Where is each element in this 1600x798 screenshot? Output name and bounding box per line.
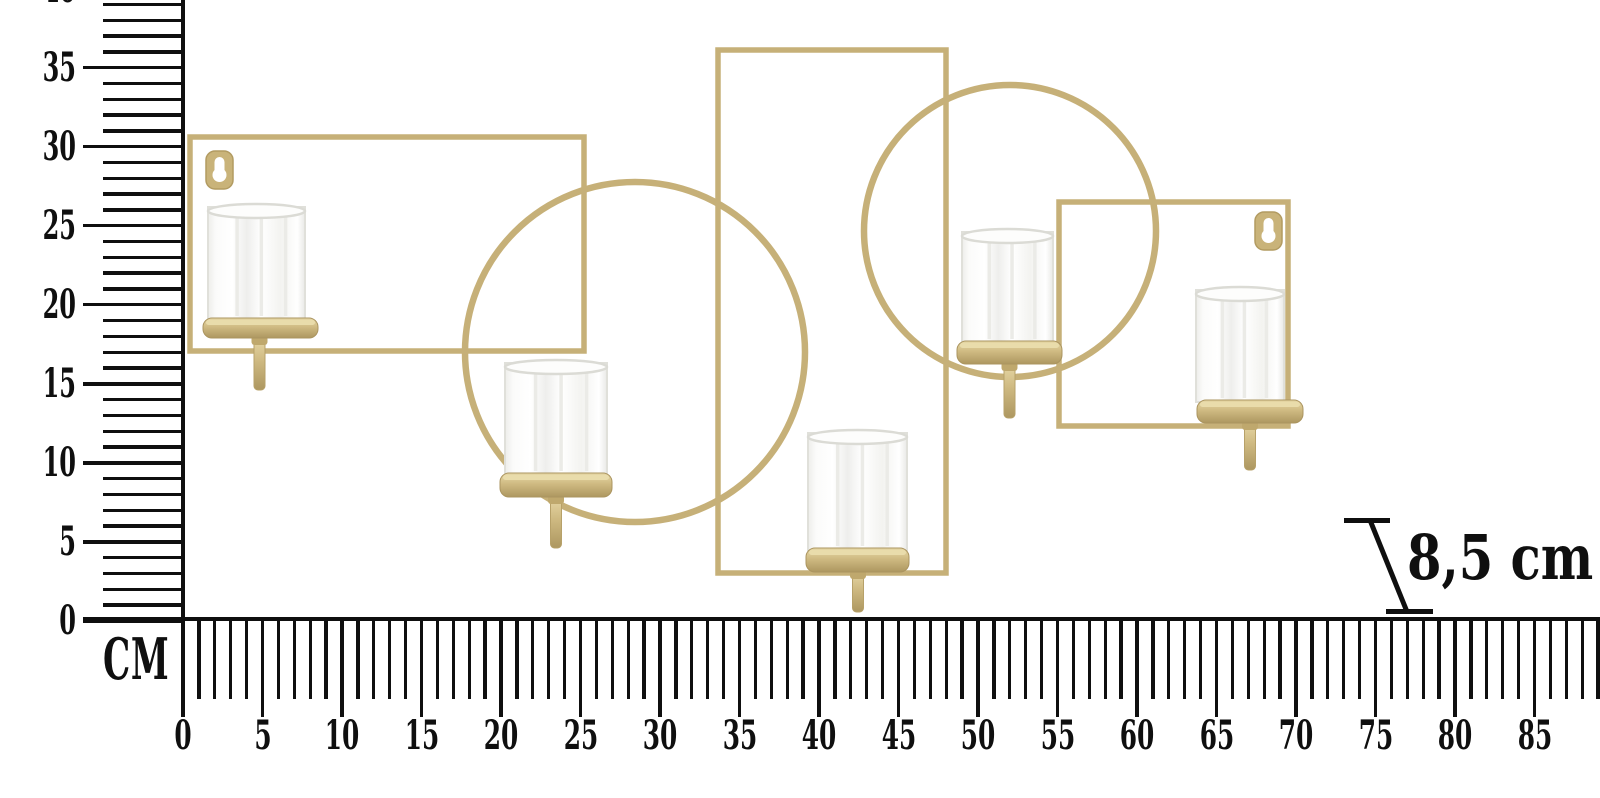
h-ruler-minor-tick [992,619,995,699]
glass-rim [808,430,907,444]
h-ruler-minor-tick [356,619,359,699]
h-ruler-minor-tick [706,619,709,699]
h-ruler-minor-tick [1517,619,1520,699]
h-ruler-minor-tick [690,619,693,699]
h-ruler-minor-tick [1501,619,1504,699]
h-ruler-minor-tick [1024,619,1027,699]
h-ruler-major-tick [499,619,502,717]
h-ruler-minor-tick [1437,619,1440,699]
h-ruler-label: 30 [635,714,685,758]
h-ruler-minor-tick [1040,619,1043,699]
h-ruler-minor-tick [611,619,614,699]
h-ruler-minor-tick [722,619,725,699]
h-ruler-minor-tick [849,619,852,699]
cup-base-highlight [1200,402,1300,407]
depth-bottom-bar [1386,609,1433,614]
h-ruler-minor-tick [1072,619,1075,699]
v-ruler-minor-tick [103,556,183,559]
h-ruler-minor-tick [1390,619,1393,699]
v-ruler-major-tick [83,461,183,464]
h-ruler-label: 35 [715,714,765,758]
h-ruler-label: 60 [1112,714,1162,758]
v-ruler-minor-tick [103,240,183,243]
h-ruler-label: 15 [397,714,447,758]
v-ruler-minor-tick [103,603,183,606]
v-ruler-label: 0 [38,599,76,643]
v-ruler-label: 25 [38,204,76,248]
v-ruler-label: 10 [38,441,76,485]
h-ruler-minor-tick [1596,619,1599,699]
v-ruler-label: 20 [38,283,76,327]
cup-base-highlight [206,320,315,325]
h-ruler-minor-tick [945,619,948,699]
v-ruler-label: 15 [38,362,76,406]
v-ruler-label: 40 [38,0,76,11]
h-ruler-major-tick [579,619,582,717]
h-ruler-minor-tick [801,619,804,699]
h-ruler-minor-tick [1278,619,1281,699]
h-ruler-minor-tick [1151,619,1154,699]
h-ruler-minor-tick [1183,619,1186,699]
h-ruler-minor-tick [309,619,312,699]
v-ruler-major-tick [83,382,183,385]
h-ruler-major-tick [897,619,900,717]
v-ruler-minor-tick [103,493,183,496]
measurement-diagram: 0510152025303540051015202530354045505560… [0,0,1600,798]
h-ruler-minor-tick [563,619,566,699]
glass-rim [505,360,607,374]
h-ruler-minor-tick [277,619,280,699]
v-ruler-minor-tick [103,98,183,101]
h-ruler-minor-tick [1565,619,1568,699]
v-ruler-minor-tick [103,430,183,433]
h-ruler-major-tick [1533,619,1536,717]
h-ruler-minor-tick [1342,619,1345,699]
v-ruler-major-tick [83,540,183,543]
v-ruler-major-tick [83,66,183,69]
glass-rim [1196,287,1284,301]
h-ruler-major-tick [1215,619,1218,717]
h-ruler-minor-tick [642,619,645,699]
h-ruler-minor-tick [1581,619,1584,699]
h-ruler-label: 70 [1271,714,1321,758]
h-ruler-major-tick [658,619,661,717]
h-ruler-minor-tick [913,619,916,699]
v-ruler-minor-tick [103,509,183,512]
h-ruler-minor-tick [770,619,773,699]
h-ruler-major-tick [1453,619,1456,717]
cup-base-highlight [809,550,906,555]
v-ruler-minor-tick [103,287,183,290]
h-ruler-minor-tick [1104,619,1107,699]
h-ruler-minor-tick [1263,619,1266,699]
h-ruler-minor-tick [1247,619,1250,699]
keyhole-hanger-right [1255,212,1282,250]
h-ruler-minor-tick [1326,619,1329,699]
h-ruler-minor-tick [929,619,932,699]
h-ruler-minor-tick [1406,619,1409,699]
h-ruler-label: 80 [1430,714,1480,758]
v-ruler-minor-tick [103,588,183,591]
v-ruler-minor-tick [103,19,183,22]
h-ruler-minor-tick [404,619,407,699]
h-ruler-minor-tick [627,619,630,699]
h-ruler-major-tick [181,619,184,717]
h-ruler-minor-tick [1422,619,1425,699]
v-ruler-minor-tick [103,366,183,369]
h-ruler-minor-tick [1167,619,1170,699]
v-ruler-major-tick [83,224,183,227]
glass-cylinder [1196,290,1284,402]
v-ruler-label: 30 [38,125,76,169]
h-ruler-minor-tick [531,619,534,699]
h-ruler-minor-tick [881,619,884,699]
v-ruler-minor-tick [103,335,183,338]
h-ruler-major-tick [1294,619,1297,717]
v-ruler-minor-tick [103,351,183,354]
h-ruler-label: 45 [874,714,924,758]
h-ruler-minor-tick [960,619,963,699]
h-ruler-minor-tick [388,619,391,699]
v-ruler-label: 5 [38,520,76,564]
v-ruler-minor-tick [103,129,183,132]
h-ruler-minor-tick [324,619,327,699]
h-ruler-minor-tick [833,619,836,699]
h-ruler-minor-tick [754,619,757,699]
h-ruler-label: 40 [794,714,844,758]
h-ruler-minor-tick [293,619,296,699]
v-ruler-minor-tick [103,271,183,274]
h-ruler-label: 75 [1351,714,1401,758]
h-ruler-major-tick [261,619,264,717]
h-ruler-minor-tick [1119,619,1122,699]
v-ruler-minor-tick [103,524,183,527]
h-ruler-minor-tick [1469,619,1472,699]
glass-rim [208,204,305,218]
cup-base-highlight [503,475,609,480]
v-ruler-minor-tick [103,414,183,417]
v-ruler-minor-tick [103,82,183,85]
v-ruler-minor-tick [103,208,183,211]
h-ruler-minor-tick [786,619,789,699]
h-ruler-major-tick [738,619,741,717]
depth-value-label: 8,5 cm [1407,527,1593,589]
v-ruler-minor-tick [103,319,183,322]
h-ruler-minor-tick [547,619,550,699]
h-ruler-minor-tick [229,619,232,699]
h-ruler-label: 25 [556,714,606,758]
v-ruler-minor-tick [103,3,183,6]
h-ruler-major-tick [976,619,979,717]
v-ruler-minor-tick [103,477,183,480]
h-ruler-minor-tick [1199,619,1202,699]
h-ruler-label: 5 [238,714,288,758]
h-ruler-minor-tick [245,619,248,699]
h-ruler-minor-tick [674,619,677,699]
h-ruler-minor-tick [515,619,518,699]
cup-base-highlight [960,343,1059,348]
v-ruler-major-tick [83,619,183,622]
h-ruler-major-tick [817,619,820,717]
h-ruler-major-tick [340,619,343,717]
v-ruler-label: 35 [38,46,76,90]
h-ruler-minor-tick [436,619,439,699]
h-ruler-label: 0 [158,714,208,758]
h-ruler-minor-tick [1549,619,1552,699]
cm-unit-label: CM [103,631,169,688]
glass-cylinder [962,232,1053,343]
v-ruler-minor-tick [103,398,183,401]
h-ruler-minor-tick [1008,619,1011,699]
glass-cylinder [208,207,305,320]
v-ruler-minor-tick [103,34,183,37]
h-ruler-minor-tick [1310,619,1313,699]
h-ruler-minor-tick [1088,619,1091,699]
h-ruler-minor-tick [1358,619,1361,699]
vertical-ruler-line [181,0,185,622]
v-ruler-major-tick [83,145,183,148]
candle-cup-4 [957,229,1062,418]
glass-rim [962,229,1053,243]
v-ruler-minor-tick [103,192,183,195]
h-ruler-label: 50 [953,714,1003,758]
h-ruler-major-tick [420,619,423,717]
h-ruler-minor-tick [1231,619,1234,699]
v-ruler-minor-tick [103,50,183,53]
candle-cup-1 [203,204,318,390]
v-ruler-major-tick [83,303,183,306]
h-ruler-minor-tick [372,619,375,699]
h-ruler-minor-tick [595,619,598,699]
h-ruler-label: 85 [1510,714,1560,758]
h-ruler-major-tick [1374,619,1377,717]
h-ruler-label: 55 [1033,714,1083,758]
glass-cylinder [505,363,607,475]
h-ruler-minor-tick [1485,619,1488,699]
v-ruler-minor-tick [103,161,183,164]
h-ruler-label: 10 [317,714,367,758]
h-ruler-minor-tick [865,619,868,699]
v-ruler-minor-tick [103,256,183,259]
h-ruler-label: 20 [476,714,526,758]
candle-cup-3 [806,430,909,612]
h-ruler-minor-tick [452,619,455,699]
h-ruler-minor-tick [213,619,216,699]
v-ruler-minor-tick [103,572,183,575]
v-ruler-minor-tick [103,177,183,180]
v-ruler-minor-tick [103,113,183,116]
v-ruler-minor-tick [103,445,183,448]
keyhole-hanger-left [206,151,233,189]
h-ruler-major-tick [1056,619,1059,717]
h-ruler-major-tick [1135,619,1138,717]
glass-cylinder [808,433,907,550]
h-ruler-minor-tick [197,619,200,699]
h-ruler-minor-tick [483,619,486,699]
h-ruler-minor-tick [468,619,471,699]
h-ruler-label: 65 [1192,714,1242,758]
